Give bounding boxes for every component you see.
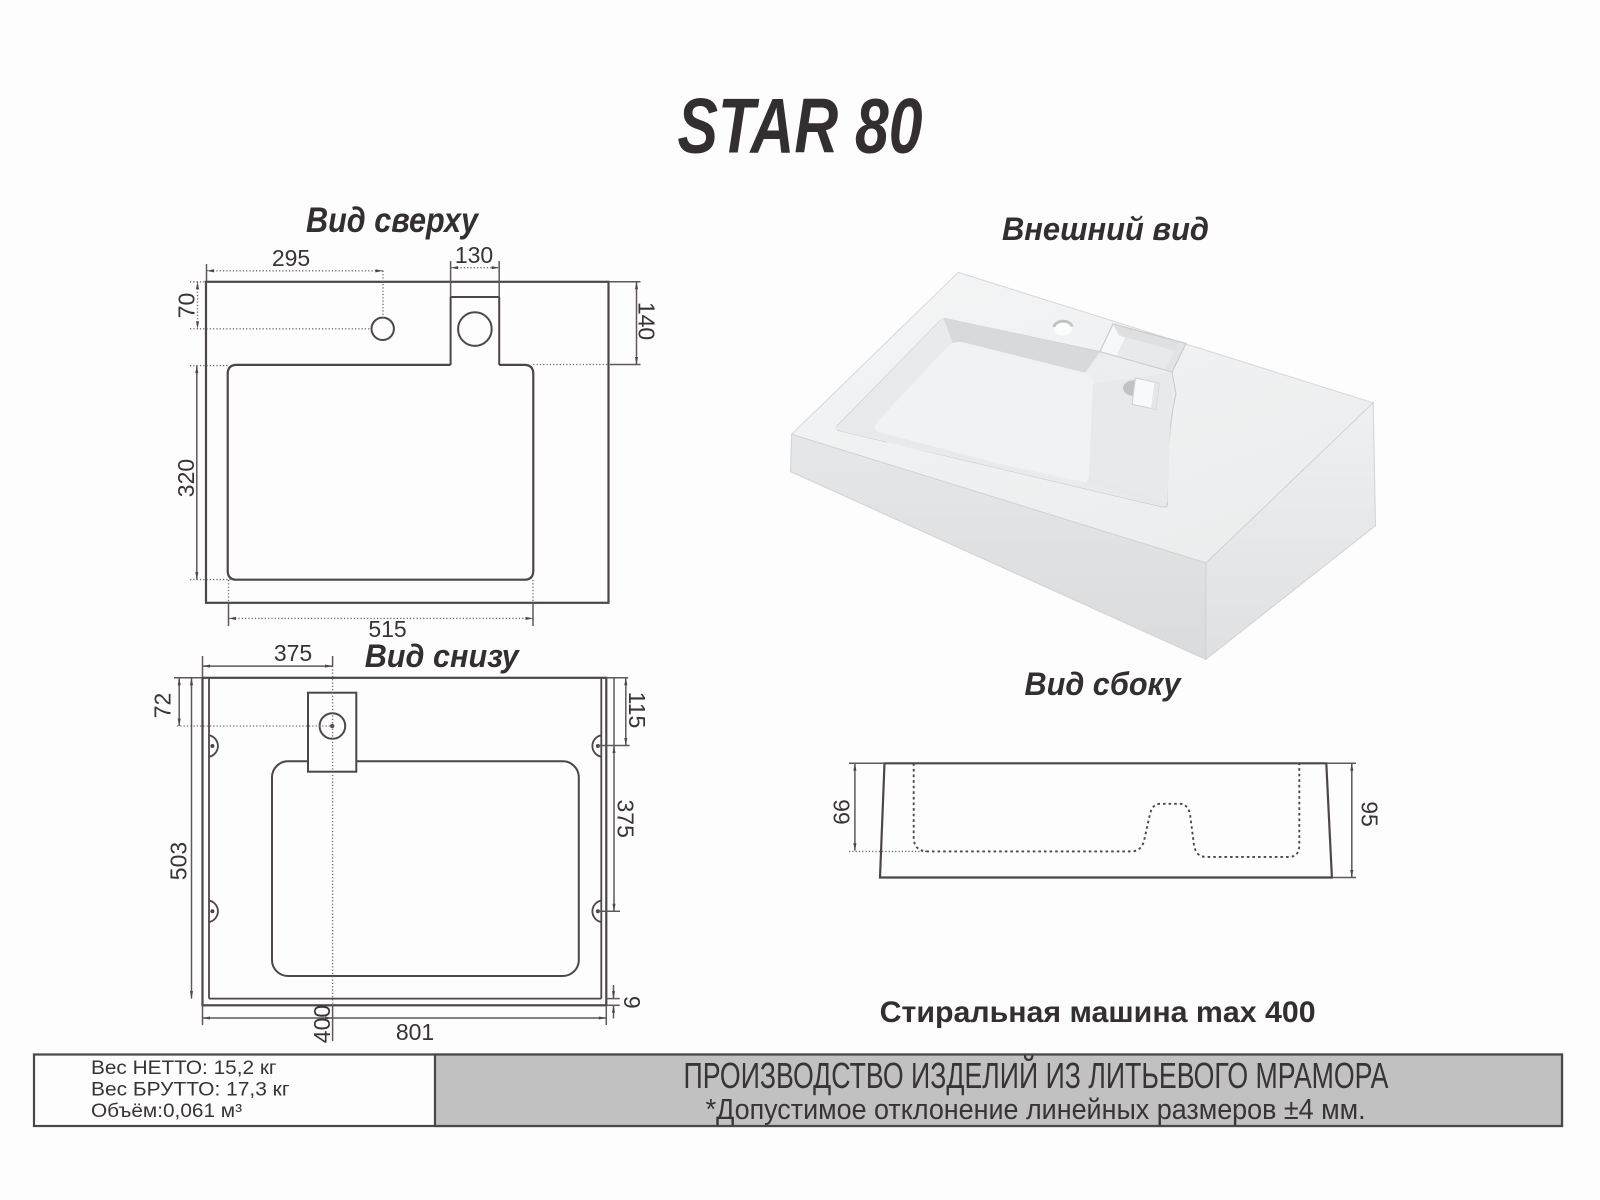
svg-text:Вес БРУТТО: 17,3 кг: Вес БРУТТО: 17,3 кг <box>91 1079 290 1101</box>
svg-text:Стиральная машина max 400: Стиральная машина max 400 <box>880 996 1316 1029</box>
svg-text:515: 515 <box>368 616 406 642</box>
svg-text:95: 95 <box>1357 801 1383 827</box>
svg-text:130: 130 <box>455 242 493 268</box>
svg-text:320: 320 <box>173 459 199 497</box>
svg-text:375: 375 <box>613 800 639 838</box>
svg-text:503: 503 <box>166 842 192 880</box>
svg-text:115: 115 <box>624 692 650 729</box>
svg-text:375: 375 <box>274 640 312 666</box>
svg-text:Вид сверху: Вид сверху <box>306 201 479 240</box>
svg-text:801: 801 <box>396 1019 434 1045</box>
svg-text:9: 9 <box>619 996 645 1009</box>
svg-text:Вид снизу: Вид снизу <box>365 638 521 674</box>
svg-text:ПРОИЗВОДСТВО ИЗДЕЛИЙ ИЗ ЛИТЬЕВ: ПРОИЗВОДСТВО ИЗДЕЛИЙ ИЗ ЛИТЬЕВОГО МРАМОР… <box>684 1054 1389 1096</box>
svg-text:Вес НЕТТО: 15,2 кг: Вес НЕТТО: 15,2 кг <box>91 1057 277 1079</box>
svg-text:295: 295 <box>272 245 310 271</box>
svg-text:*Допустимое отклонение линейны: *Допустимое отклонение линейных размеров… <box>706 1094 1366 1126</box>
svg-text:STAR 80: STAR 80 <box>678 82 923 170</box>
svg-text:140: 140 <box>634 302 660 340</box>
svg-text:Вид сбоку: Вид сбоку <box>1025 666 1183 702</box>
svg-text:70: 70 <box>174 293 200 319</box>
svg-text:72: 72 <box>150 693 176 719</box>
svg-text:400: 400 <box>309 1005 335 1043</box>
svg-text:Внешний вид: Внешний вид <box>1002 211 1209 247</box>
svg-text:66: 66 <box>829 799 855 825</box>
svg-text:Объём:0,061 м³: Объём:0,061 м³ <box>91 1100 243 1122</box>
